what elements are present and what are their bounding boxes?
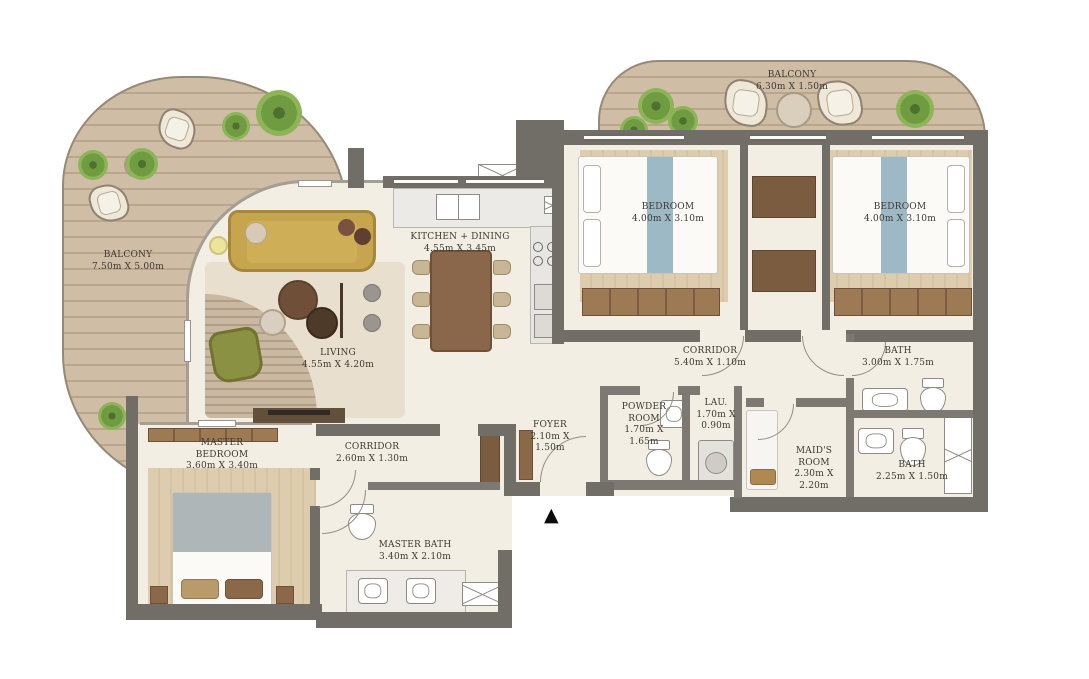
entrance-arrow: ▲ [544, 506, 559, 525]
room-name: CORRIDOR [655, 346, 765, 358]
nightstand [276, 586, 294, 604]
room-dims: 2.60m X 1.30m [317, 454, 427, 466]
wall [846, 334, 854, 342]
wall [126, 396, 138, 462]
window [584, 134, 684, 141]
bath1-vanity [862, 388, 908, 412]
sofa-cushion [245, 222, 267, 244]
wall [478, 424, 516, 436]
room-dims: 2.30m X 2.20m [786, 469, 842, 492]
wall [740, 145, 748, 330]
room-label-kitchen: KITCHEN + DINING 4.55m X 3.45m [395, 232, 525, 255]
window [394, 178, 458, 185]
room-name: BEDROOM [613, 202, 723, 214]
room-label-bedroom-2: BEDROOM 4.00m X 3.10m [845, 202, 955, 225]
wall [310, 506, 320, 616]
room-name: CORRIDOR [317, 442, 427, 454]
room-name: BATH [848, 346, 948, 358]
room-dims: 3.00m X 1.75m [848, 358, 948, 370]
room-name: BALCONY [68, 250, 188, 262]
wall [796, 398, 852, 407]
kitchen-sink [436, 194, 480, 220]
wardrobe [582, 288, 720, 316]
room-name: BALCONY [727, 70, 857, 82]
sofa-cushion [354, 228, 371, 245]
room-dims: 2.25m X 1.50m [862, 472, 962, 484]
wall [126, 604, 322, 620]
wall [348, 148, 364, 188]
wall [316, 424, 440, 436]
room-label-foyer: FOYER 2.10m X 1.50m [527, 420, 573, 455]
room-name: LIVING [283, 348, 393, 360]
pouf [363, 284, 381, 302]
tv [268, 410, 330, 415]
wall [552, 176, 564, 344]
dining-chair [493, 260, 511, 275]
wall [854, 410, 973, 418]
stove-burner [533, 242, 543, 252]
nightstand [150, 586, 168, 604]
room-dims: 3.40m X 2.10m [360, 552, 470, 564]
closet-cabinet [752, 176, 816, 218]
bath2-vanity [858, 428, 894, 454]
room-name: FOYER [527, 420, 573, 432]
room-name: KITCHEN + DINING [395, 232, 525, 244]
wall [846, 378, 854, 497]
shower-mat [462, 582, 502, 606]
wall [745, 330, 801, 342]
plant [896, 90, 934, 128]
room-dims: 7.50m X 5.00m [68, 262, 188, 274]
room-dims: 3.60m X 3.40m [183, 461, 261, 473]
room-name: BEDROOM [845, 202, 955, 214]
floor-lamp-rod [340, 283, 343, 338]
room-dims: 5.40m X 1.10m [655, 358, 765, 370]
room-label-bedroom-1: BEDROOM 4.00m X 3.10m [613, 202, 723, 225]
room-label-powder-room: POWDER ROOM 1.70m X 1.65m [619, 402, 669, 449]
bed-blanket [173, 493, 271, 552]
room-dims: 2.10m X 1.50m [527, 432, 573, 455]
pillow [583, 219, 601, 267]
plant [256, 90, 302, 136]
sofa-cushion [338, 219, 355, 236]
vanity-basin [358, 578, 388, 604]
wall [126, 460, 138, 618]
pillow [947, 219, 965, 267]
wall [564, 330, 700, 342]
stove-burner [533, 256, 543, 266]
plant [222, 112, 250, 140]
room-name: MASTER BATH [360, 540, 470, 552]
room-label-balcony-left: BALCONY 7.50m X 5.00m [68, 250, 188, 273]
room-label-master-bath: MASTER BATH 3.40m X 2.10m [360, 540, 470, 563]
wall [846, 330, 973, 342]
toilet-bowl [646, 449, 672, 476]
washing-machine [698, 440, 734, 482]
pillow [181, 579, 219, 599]
room-name: POWDER ROOM [619, 402, 669, 425]
room-dims: 4.00m X 3.10m [613, 214, 723, 226]
tv-console [253, 408, 345, 423]
pouf [363, 314, 381, 332]
toilet [920, 378, 946, 414]
room-label-maids-room: MAID'S ROOM 2.30m X 2.20m [786, 446, 842, 493]
window [872, 134, 964, 141]
pillow [750, 469, 776, 485]
wall [600, 386, 608, 482]
bed [172, 492, 272, 608]
room-label-master-bedroom: MASTER BEDROOM 3.60m X 3.40m [183, 438, 261, 473]
side-table-dark [306, 307, 338, 339]
room-name: BATH [862, 460, 962, 472]
pillow [225, 579, 263, 599]
room-name: MASTER BEDROOM [183, 438, 261, 461]
coffee-table-small [259, 309, 286, 336]
room-name: MAID'S ROOM [786, 446, 842, 469]
wall [730, 497, 988, 512]
sink-divider [458, 195, 459, 219]
room-label-living: LIVING 4.55m X 4.20m [283, 348, 393, 371]
dining-chair [412, 260, 430, 275]
dining-chair [493, 324, 511, 339]
dining-chair [493, 292, 511, 307]
room-label-bath-2: BATH 2.25m X 1.50m [862, 460, 962, 483]
room-dims: 4.55m X 4.20m [283, 360, 393, 372]
vanity-basin [406, 578, 436, 604]
wall [368, 482, 500, 490]
wall [516, 120, 564, 182]
wall [498, 550, 512, 628]
room-label-balcony-top: BALCONY 6.30m X 1.50m [727, 70, 857, 93]
closet-cabinet [752, 250, 816, 292]
sliding-door [198, 420, 236, 427]
floor-lamp [209, 236, 228, 255]
room-label-bath-1: BATH 3.00m X 1.75m [848, 346, 948, 369]
room-name: LAU. [694, 398, 738, 410]
window [466, 178, 544, 185]
dining-table [430, 250, 492, 352]
wall [586, 482, 614, 496]
wall [504, 482, 540, 496]
round-table [776, 92, 812, 128]
room-dims: 4.55m X 3.45m [395, 244, 525, 256]
floor-plan: BALCONY 7.50m X 5.00m BALCONY 6.30m X 1.… [0, 0, 1089, 679]
dining-chair [412, 324, 430, 339]
wall [316, 612, 512, 628]
sliding-door [298, 180, 332, 187]
plant [78, 150, 108, 180]
room-label-corridor-main: CORRIDOR 5.40m X 1.10m [655, 346, 765, 369]
room-dims: 4.00m X 3.10m [845, 214, 955, 226]
wall [682, 386, 690, 482]
room-dims: 1.70m X 1.65m [619, 425, 669, 448]
dining-chair [412, 292, 430, 307]
wall [608, 480, 742, 490]
room-dims: 1.70m X 0.90m [694, 410, 738, 433]
plant [98, 402, 126, 430]
pillow [583, 165, 601, 213]
window [750, 134, 826, 141]
armchair [207, 325, 265, 385]
sliding-door [184, 320, 191, 362]
room-dims: 6.30m X 1.50m [727, 82, 857, 94]
wall [822, 145, 830, 330]
wall [973, 130, 988, 512]
plant [126, 148, 158, 180]
room-label-corridor-2: CORRIDOR 2.60m X 1.30m [317, 442, 427, 465]
room-label-laundry: LAU. 1.70m X 0.90m [694, 398, 738, 433]
wardrobe [834, 288, 972, 316]
hall-cabinet [480, 428, 500, 486]
